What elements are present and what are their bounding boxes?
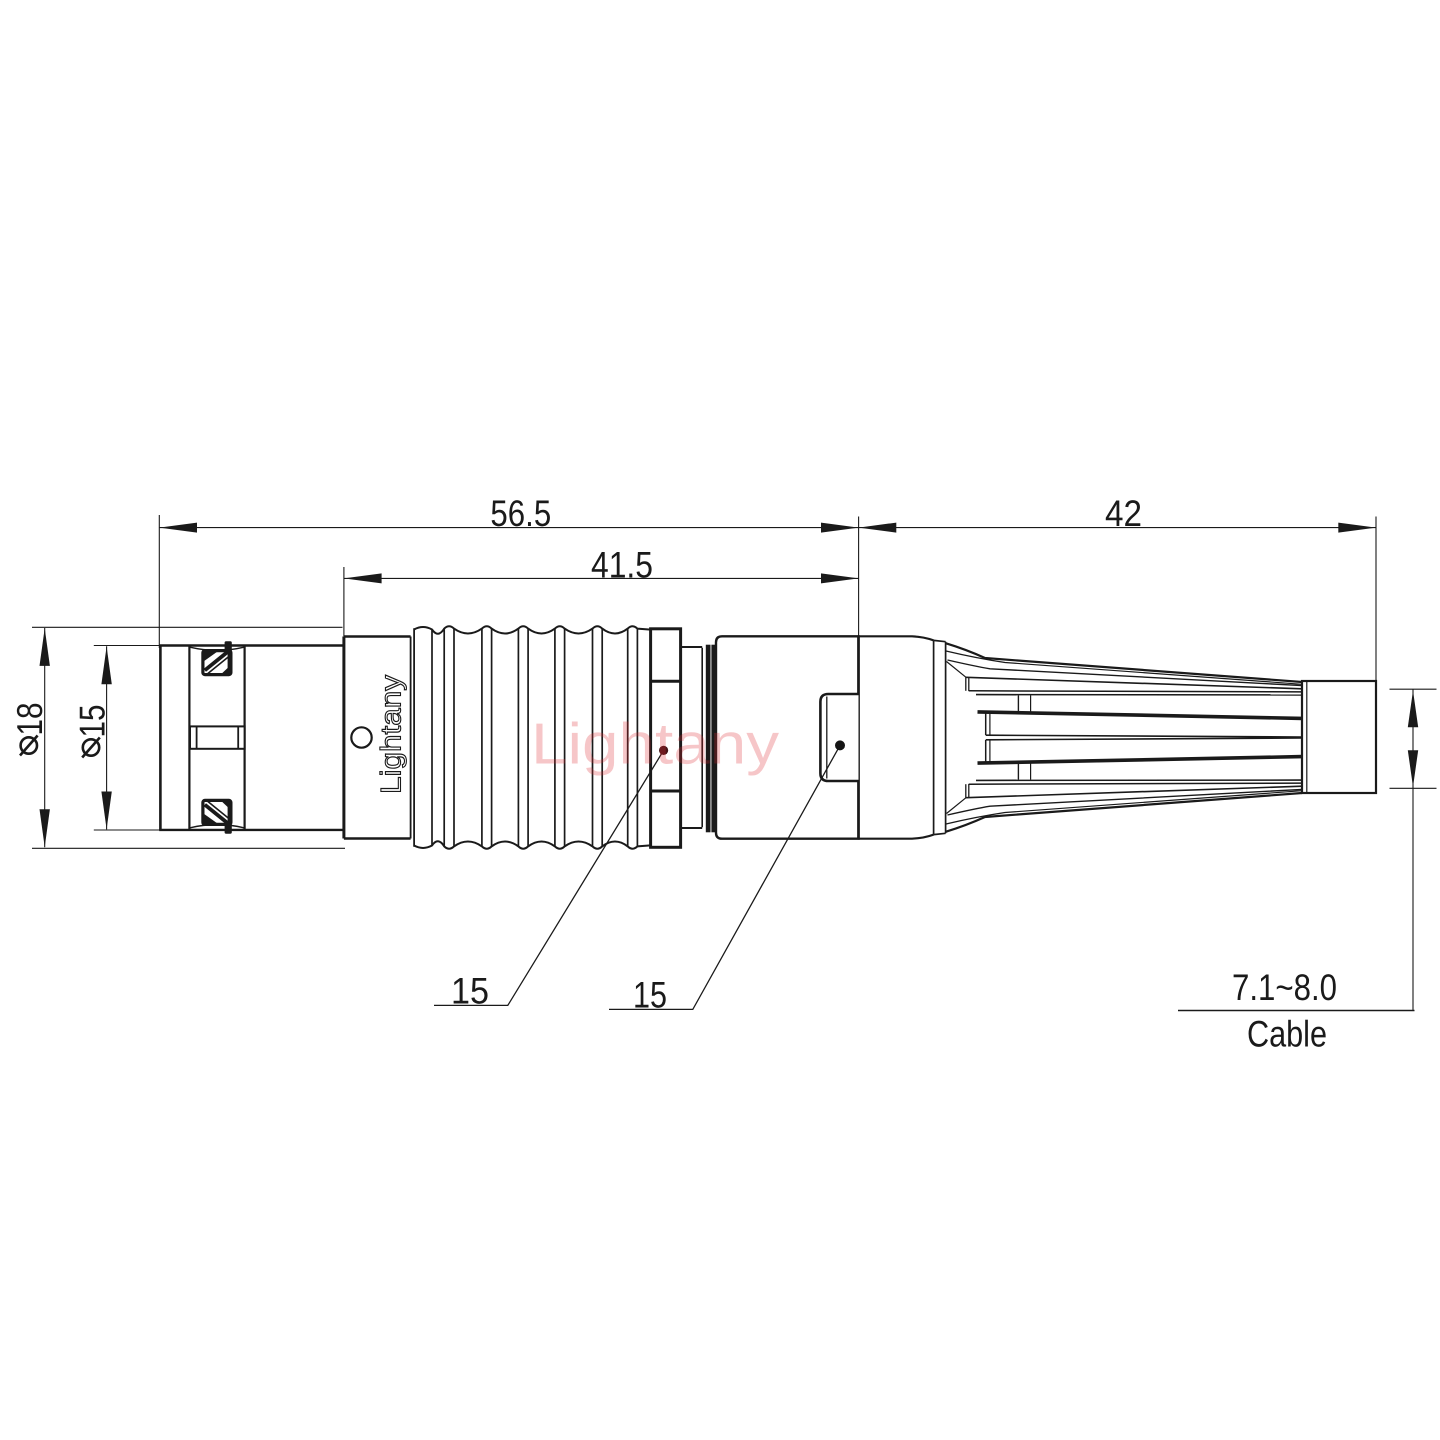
svg-text:Lightany: Lightany bbox=[376, 674, 408, 794]
svg-text:15: 15 bbox=[451, 971, 489, 1012]
svg-text:Cable: Cable bbox=[1247, 1014, 1327, 1055]
svg-text:15: 15 bbox=[71, 705, 112, 738]
svg-text:18: 18 bbox=[9, 703, 50, 736]
svg-text:41.5: 41.5 bbox=[591, 544, 653, 585]
svg-text:15: 15 bbox=[633, 975, 667, 1016]
svg-text:42: 42 bbox=[1105, 493, 1142, 534]
svg-text:7.1~8.0: 7.1~8.0 bbox=[1232, 967, 1337, 1008]
svg-text:Lightany: Lightany bbox=[531, 712, 779, 777]
svg-text:56.5: 56.5 bbox=[490, 493, 551, 534]
